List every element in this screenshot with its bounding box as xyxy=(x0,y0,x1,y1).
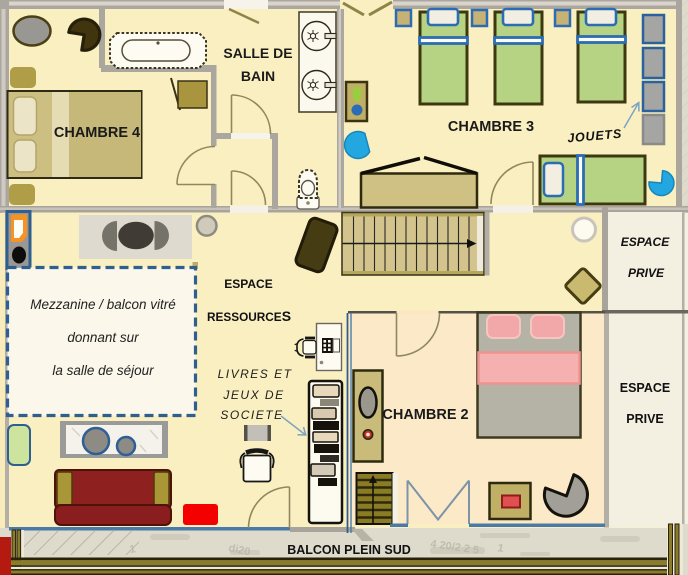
svg-text:SALLE DE: SALLE DE xyxy=(223,45,292,61)
svg-text:PRIVE: PRIVE xyxy=(628,266,665,280)
svg-text:CHAMBRE 3: CHAMBRE 3 xyxy=(448,119,534,135)
svg-text:CHAMBRE 4: CHAMBRE 4 xyxy=(54,125,140,141)
svg-text:la salle de séjour: la salle de séjour xyxy=(52,363,154,378)
svg-text:RESSOURCES: RESSOURCES xyxy=(207,308,291,324)
svg-text:ESPACE: ESPACE xyxy=(621,235,670,249)
svg-text:BALCON PLEIN SUD: BALCON PLEIN SUD xyxy=(287,543,411,557)
svg-text:donnant sur: donnant sur xyxy=(67,330,139,345)
svg-text:CHAMBRE 2: CHAMBRE 2 xyxy=(382,407,468,423)
svg-text:Mezzanine / balcon vitré: Mezzanine / balcon vitré xyxy=(30,297,176,312)
svg-text:LIVRES ET: LIVRES ET xyxy=(218,367,293,381)
svg-text:JEUX DE: JEUX DE xyxy=(222,388,284,402)
svg-text:ESPACE: ESPACE xyxy=(224,277,272,291)
svg-text:BAIN: BAIN xyxy=(241,68,275,84)
svg-text:ESPACE: ESPACE xyxy=(620,381,670,395)
svg-text:SOCIETE: SOCIETE xyxy=(220,408,283,422)
svg-text:PRIVE: PRIVE xyxy=(626,412,664,426)
